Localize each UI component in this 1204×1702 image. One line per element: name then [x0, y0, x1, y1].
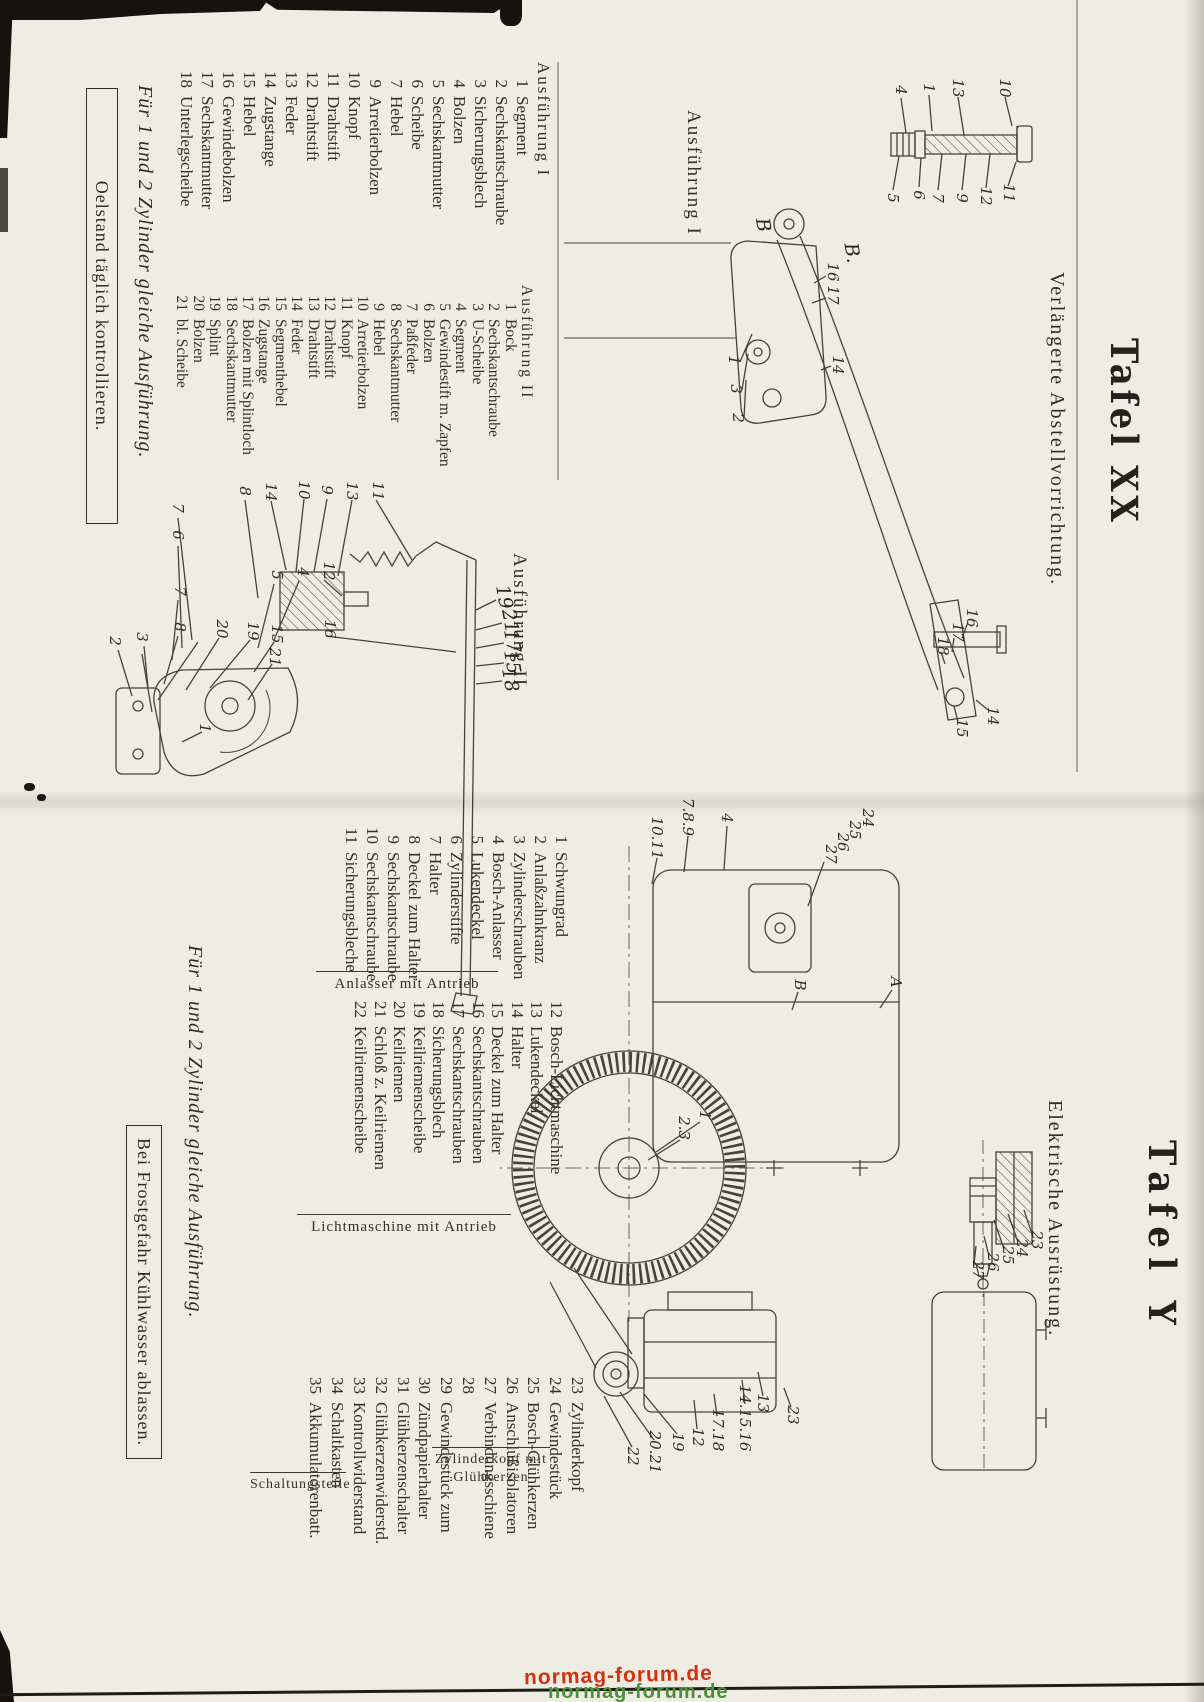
callout-label: 4 [294, 567, 312, 577]
drawing-battery [932, 1292, 1046, 1470]
part-number: 9 [370, 285, 386, 319]
part-label: Zylinderschrauben [509, 852, 530, 979]
parts-list-item: 14Halter [507, 992, 527, 1174]
parts-list-ausfuehrung-2: Ausführung II 1Bock2Sechskantschraube3U-… [173, 285, 534, 467]
part-label: Sicherungsblech [429, 1026, 449, 1138]
parts-list-item: 17Bolzen mit Splintloch [239, 285, 255, 467]
part-label: Hebel [239, 96, 260, 137]
callout-label: 10 [996, 78, 1014, 97]
page-fold-shadow [0, 790, 1204, 816]
part-label: Sechskantschraube [491, 96, 512, 225]
callout-label: 15 [953, 718, 971, 737]
callout-label: A [887, 977, 905, 988]
callout-label: 17 [824, 285, 842, 304]
callout-label: 27 [822, 844, 840, 863]
part-label: Scheibe [407, 96, 428, 150]
part-number: 11 [323, 62, 344, 96]
parts-list-item: 2Anlaßzahnkranz [530, 818, 551, 981]
part-label: Drahtstift [323, 96, 344, 161]
callout-label: 7 [171, 586, 189, 596]
callout-label: 4 [892, 85, 910, 95]
part-label: Arretierbolzen [365, 96, 386, 195]
callout-label: 1 [725, 355, 743, 365]
part-number: 1 [501, 285, 517, 319]
parts-list-item: 1Bock [501, 285, 517, 467]
parts-list-item: 31Glühkerzenschalter [392, 1368, 414, 1544]
part-number: 15 [272, 285, 288, 319]
callout-label: B. [839, 241, 864, 265]
part-number: 12 [321, 285, 337, 319]
part-label: Sechskantmutter [222, 319, 238, 422]
callout-label: 2 [106, 636, 124, 646]
callout-label: 12 [689, 1427, 707, 1446]
part-number: 5 [436, 285, 452, 319]
part-label: Lukendeckel [467, 852, 488, 940]
drawing-stop-lever [564, 209, 964, 690]
parts-list-item: 7Hebel [386, 62, 407, 225]
caption-line-2: Glühkerzen [432, 1469, 550, 1487]
part-label: Lukendeckel [527, 1026, 547, 1114]
part-number: 2 [491, 62, 512, 96]
staple-mark-2 [37, 794, 46, 801]
part-number: 1 [512, 62, 533, 96]
part-label: Gewindestift m. Zapfen [436, 319, 452, 467]
parts-list-item: 3U-Scheibe [468, 285, 484, 467]
part-label: bl. Scheibe [173, 319, 189, 388]
callout-label: B [791, 979, 809, 990]
part-number: 18 [429, 992, 449, 1026]
callout-label: 14 [984, 706, 1002, 725]
part-number: 16 [218, 62, 239, 96]
scan-edge-artifact-top-3 [500, 0, 522, 26]
callout-label: 19 [244, 621, 262, 640]
part-label: Segmenthebel [272, 319, 288, 407]
part-label: Akkumulatorenbatt. [305, 1402, 327, 1538]
part-label: Gewindebolzen [218, 96, 239, 203]
parts-list-item: 1Schwungrad [551, 818, 572, 981]
part-label: Knopf [344, 96, 365, 139]
callout-label: 27 [969, 1260, 987, 1279]
callout-label: 12 [320, 561, 338, 580]
part-number: 20 [189, 285, 205, 319]
part-label: Anlaßzahnkranz [530, 852, 551, 963]
callout-label: 6 [169, 530, 187, 540]
part-label: Kontrollwiderstand [348, 1402, 370, 1534]
part-label: Halter [507, 1026, 527, 1068]
parts-list-item: 9Hebel [370, 285, 386, 467]
part-number: 10 [344, 62, 365, 96]
part-label: Unterlegscheibe [176, 96, 197, 206]
parts-list-item: 35Akkumulatorenbatt. [305, 1368, 327, 1544]
part-number: 26 [501, 1368, 523, 1402]
parts-list-item: 16Gewindebolzen [218, 62, 239, 225]
part-number: 2 [530, 818, 551, 852]
part-label: Deckel zum Halter [488, 1026, 508, 1154]
parts-list-item: 17Sechskantmutter [197, 62, 218, 225]
callout-label: 22 [624, 1446, 642, 1465]
callout-label: 9 [953, 193, 971, 203]
callout-label: 13 [343, 481, 361, 500]
parts-list-item: 1Segment [512, 62, 533, 225]
part-number: 11 [341, 818, 362, 852]
part-number: 16 [255, 285, 271, 319]
part-label: Drahtstift [304, 319, 320, 378]
part-number: 23 [566, 1368, 588, 1402]
parts-list-item: 14Feder [288, 285, 304, 467]
parts-list-item: 4Segment [452, 285, 468, 467]
callout-label: 14 [829, 355, 847, 374]
scan-edge-artifact-left-2 [0, 168, 8, 232]
part-label: Sechskantschraube [485, 319, 501, 437]
callout-label: 6 [910, 190, 928, 200]
parts-list-item: 10Knopf [344, 62, 365, 225]
part-label: Keilriemenscheibe [409, 1026, 429, 1153]
callout-label: 14.15.16 [736, 1385, 754, 1452]
callout-label: 12 [977, 186, 995, 205]
note-same-design-left: Für 1 und 2 Zylinder gleiche Ausführung. [133, 85, 156, 459]
parts-list-item: 13Drahtstift [304, 285, 320, 467]
callout-label: 18 [934, 636, 952, 655]
part-label: Sechskantmutter [386, 319, 402, 422]
part-number: 5 [467, 818, 488, 852]
parts-list-item: 16Zugstange [255, 285, 271, 467]
parts-list-item: 18Sechskantmutter [222, 285, 238, 467]
part-label: Bosch-Anlasser [488, 852, 509, 960]
parts-list-header: Ausführung II [518, 285, 534, 467]
part-label: Feder [281, 96, 302, 135]
callout-label: 2 [729, 413, 747, 423]
part-number: 8 [386, 285, 402, 319]
callout-label: 1 [920, 83, 938, 93]
note-box-frost-warning: Bei Frostgefahr Kühlwasser ablassen. [126, 1125, 162, 1459]
figure-caption-dynamo: Lichtmaschine mit Antrieb [297, 1214, 511, 1244]
parts-list-item: 12Drahtstift [302, 62, 323, 225]
part-label: Arretierbolzen [354, 319, 370, 409]
callout-label: 8 [236, 486, 254, 496]
part-number: 7 [425, 818, 446, 852]
parts-list-starter: 1Schwungrad2Anlaßzahnkranz3Zylinderschra… [341, 818, 572, 981]
parts-list-item: 14Zugstange [260, 62, 281, 225]
parts-list-item: 32Glühkerzenwiderstd. [370, 1368, 392, 1544]
parts-list-item: 16Sechskantschrauben [468, 992, 488, 1174]
parts-list-item: 5Lukendeckel [467, 818, 488, 981]
callout-label: 20.21 [646, 1431, 664, 1474]
callout-label: 1 [196, 723, 214, 733]
parts-list-item: 23Zylinderkopf [566, 1368, 588, 1544]
note-box-oil-check: Oelstand täglich kontrollieren. [86, 88, 118, 524]
parts-list-dynamo: 12Bosch-Lichtmaschine13Lukendeckel14Halt… [350, 992, 566, 1174]
parts-list-item: 11Knopf [337, 285, 353, 467]
part-number: 30 [414, 1368, 436, 1402]
part-label: Bolzen mit Splintloch [239, 319, 255, 455]
part-number: 24 [544, 1368, 566, 1402]
part-label: Zylinderkopf [566, 1402, 588, 1492]
part-label: Bolzen [189, 319, 205, 363]
callout-label: 19 [669, 1432, 687, 1451]
part-label: Zylinderstifte [446, 852, 467, 945]
part-label: Hebel [386, 96, 407, 137]
callout-label: 16 [321, 619, 339, 638]
callout-label: 13 [754, 1393, 772, 1412]
parts-list-item: 34Schaltkasten [326, 1368, 348, 1544]
callout-label: 14 [262, 482, 280, 501]
parts-list-item: 18Sicherungsblech [429, 992, 449, 1174]
part-number: 17 [239, 285, 255, 319]
part-number: 29 [435, 1368, 457, 1402]
callout-label: 21 [266, 647, 284, 666]
part-label: Bosch-Lichtmaschine [546, 1026, 566, 1174]
callout-label: 9 [318, 485, 336, 495]
parts-list-item: 9Sechskantschraube [383, 818, 404, 981]
part-number: 13 [281, 62, 302, 96]
scanned-manual-page: Tafel XX Verlängerte Abstellvorrichtung.… [0, 0, 1204, 1702]
part-label: Bolzen [449, 96, 470, 144]
part-number: 15 [239, 62, 260, 96]
parts-list-header: Ausführung I [533, 62, 554, 225]
part-number: 11 [337, 285, 353, 319]
part-number: 1 [551, 818, 572, 852]
part-number: 20 [390, 992, 410, 1026]
callout-label: 19 [491, 583, 517, 611]
parts-list-item: 21bl. Scheibe [173, 285, 189, 467]
parts-list-item: 7Paßfeder [403, 285, 419, 467]
part-number: 15 [488, 992, 508, 1026]
parts-list-item: 15Hebel [239, 62, 260, 225]
figure-label-ausfuehrung-1: Ausführung I [682, 110, 704, 236]
figure-caption-zylinderkopf: Zylinderkopf mit Glühkerzen [432, 1447, 550, 1493]
parts-list-item: 5Sechskantmutter [428, 62, 449, 225]
part-label: Sechskantschraube [383, 852, 404, 981]
part-number: 14 [288, 285, 304, 319]
parts-list-item: 7Halter [425, 818, 446, 981]
parts-list-ausfuehrung-1: Ausführung I 1Segment2Sechskantschraube3… [176, 62, 554, 225]
parts-list-item: 33Kontrollwiderstand [348, 1368, 370, 1544]
part-number: 21 [173, 285, 189, 319]
part-number: 34 [326, 1368, 348, 1402]
part-label: Glühkerzenschalter [392, 1402, 414, 1534]
callout-label: 18 [497, 666, 523, 694]
part-number: 18 [176, 62, 197, 96]
part-label: Zugstange [255, 319, 271, 384]
paper-crease-line [1076, 0, 1078, 772]
callout-label: 3 [133, 632, 151, 642]
parts-list-item: 10Sechskantschraube [362, 818, 383, 981]
callout-label: 7 [929, 193, 947, 203]
part-label: Bock [501, 319, 517, 352]
parts-list-item: 21Schloß z. Keilriemen [370, 992, 390, 1174]
parts-list-item: 12Drahtstift [321, 285, 337, 467]
part-number: 3 [470, 62, 491, 96]
part-number: 12 [302, 62, 323, 96]
parts-list-item: 2Sechskantschraube [485, 285, 501, 467]
part-number: 13 [527, 992, 547, 1026]
part-number: 19 [409, 992, 429, 1026]
parts-list-item: 13Feder [281, 62, 302, 225]
part-number: 14 [260, 62, 281, 96]
parts-list-item: 4Bosch-Anlasser [488, 818, 509, 981]
parts-list-item: 6Scheibe [407, 62, 428, 225]
parts-list-rows: 1Bock2Sechskantschraube3U-Scheibe4Segmen… [173, 285, 518, 467]
part-number: 32 [370, 1368, 392, 1402]
drawing-bolt-detail [891, 95, 1032, 190]
part-number: 4 [452, 285, 468, 319]
part-number: 7 [386, 62, 407, 96]
parts-list-item: 10Arretierbolzen [354, 285, 370, 467]
staple-mark-1 [24, 783, 35, 791]
page-subtitle-tafel-y: Elektrische Ausrüstung. [1043, 1100, 1066, 1337]
parts-list-rows: 12Bosch-Lichtmaschine13Lukendeckel14Halt… [350, 992, 566, 1174]
callout-label: 11 [1000, 183, 1018, 202]
parts-list-item: 12Bosch-Lichtmaschine [546, 992, 566, 1174]
parts-list-item: 6Zylinderstifte [446, 818, 467, 981]
watermark-red: normag-forum.de [524, 1662, 713, 1691]
part-label: Hebel [370, 319, 386, 356]
caption-line-1: Zylinderkopf mit [432, 1451, 550, 1469]
part-label: Keilriemen [390, 1026, 410, 1102]
callout-label: 7 [169, 503, 187, 513]
part-label: Paßfeder [403, 319, 419, 374]
part-number: 6 [407, 62, 428, 96]
part-number: 6 [446, 818, 467, 852]
parts-list-item: 3Sicherungsblech [470, 62, 491, 225]
part-number: 22 [350, 992, 370, 1026]
parts-list-item: 19Splint [206, 285, 222, 467]
part-label: Deckel zum Halter [404, 852, 425, 980]
part-number: 21 [370, 992, 390, 1026]
part-number: 35 [305, 1368, 327, 1402]
parts-list-item: 15Segmenthebel [272, 285, 288, 467]
part-label: Segment [452, 319, 468, 373]
callout-label: 13 [949, 78, 967, 97]
part-label: Keilriemenscheibe [350, 1026, 370, 1153]
note-same-design-right: Für 1 und 2 Zylinder gleiche Ausführung. [183, 945, 206, 1319]
part-number: 28 [457, 1368, 479, 1402]
parts-list-item: 20Bolzen [189, 285, 205, 467]
part-number: 7 [403, 285, 419, 319]
part-number: 5 [428, 62, 449, 96]
part-number: 9 [383, 818, 404, 852]
part-number: 27 [479, 1368, 501, 1402]
callout-label: 10 [295, 480, 313, 499]
part-label: Sechskantschrauben [448, 1026, 468, 1164]
parts-list-item: 9Arretierbolzen [365, 62, 386, 225]
part-label: Sechskantschraube [362, 852, 383, 981]
parts-list-rows: 1Segment2Sechskantschraube3Sicherungsble… [176, 62, 533, 225]
part-number: 4 [488, 818, 509, 852]
callout-label: 17.18 [709, 1409, 727, 1452]
part-label: U-Scheibe [468, 319, 484, 384]
parts-list-item: 3Zylinderschrauben [509, 818, 530, 981]
parts-list-item: 18Unterlegscheibe [176, 62, 197, 225]
figure-caption-schaltungsteile: Schaltungsteile [250, 1472, 346, 1496]
document-rotated-content: Tafel XX Verlängerte Abstellvorrichtung.… [0, 0, 1204, 1702]
page-edge-shading [1184, 0, 1204, 1702]
part-label: Knopf [337, 319, 353, 359]
callout-label: 8 [171, 622, 189, 632]
part-label: Drahtstift [321, 319, 337, 378]
part-number: 10 [354, 285, 370, 319]
part-number: 25 [523, 1368, 545, 1402]
parts-list-item: 19Keilriemenscheibe [409, 992, 429, 1174]
parts-list-item: 17Sechskantschrauben [448, 992, 468, 1174]
parts-list-item: 13Lukendeckel [527, 992, 547, 1174]
part-label: Sechskantschrauben [468, 1026, 488, 1164]
part-number: 3 [468, 285, 484, 319]
parts-list-item: 11Drahtstift [323, 62, 344, 225]
parts-list-item: 4Bolzen [449, 62, 470, 225]
part-number: 17 [448, 992, 468, 1026]
part-label: Sechskantmutter [197, 96, 218, 209]
part-number: 3 [509, 818, 530, 852]
parts-list-item: 22Keilriemenscheibe [350, 992, 370, 1174]
parts-list-item: 20Keilriemen [390, 992, 410, 1174]
part-number: 17 [197, 62, 218, 96]
callout-label: 2.3 [675, 1116, 693, 1140]
part-label: Zugstange [260, 96, 281, 167]
callout-label: 5 [268, 570, 286, 580]
part-label: Segment [512, 96, 533, 156]
callout-label: 10.11 [648, 817, 666, 860]
callout-label: 3 [727, 384, 745, 394]
parts-list-item: 5Gewindestift m. Zapfen [436, 285, 452, 467]
callout-label: 23 [784, 1405, 802, 1424]
part-label: Sicherungsbleche [341, 852, 362, 972]
drawing-strokes [116, 62, 1046, 1470]
technical-drawings [0, 0, 1204, 1702]
part-number: 19 [206, 285, 222, 319]
callout-label: 15 [268, 624, 286, 643]
part-number: 33 [348, 1368, 370, 1402]
parts-list-item: 2Sechskantschraube [491, 62, 512, 225]
part-label: Glühkerzenwiderstd. [370, 1402, 392, 1544]
parts-list-item: 6Bolzen [419, 285, 435, 467]
parts-list-item: 11Sicherungsbleche [341, 818, 362, 981]
part-number: 31 [392, 1368, 414, 1402]
part-number: 16 [468, 992, 488, 1026]
part-label: Bolzen [419, 319, 435, 363]
part-label: Feder [288, 319, 304, 354]
part-label: Halter [425, 852, 446, 894]
parts-list-item: 8Deckel zum Halter [404, 818, 425, 981]
page-title-tafel-xx: Tafel XX [1102, 338, 1146, 525]
part-number: 6 [419, 285, 435, 319]
part-number: 2 [485, 285, 501, 319]
callout-label: 20 [213, 619, 231, 638]
part-label: Schwungrad [551, 852, 572, 937]
callout-label: 5 [884, 193, 902, 203]
parts-list-item: 15Deckel zum Halter [488, 992, 508, 1174]
page-subtitle-tafel-xx: Verlängerte Abstellvorrichtung. [1045, 272, 1068, 586]
part-label: Splint [206, 319, 222, 356]
part-number: 9 [365, 62, 386, 96]
part-number: 10 [362, 818, 383, 852]
part-number: 13 [304, 285, 320, 319]
part-number: 8 [404, 818, 425, 852]
part-number: 18 [222, 285, 238, 319]
callout-label: 16 [824, 262, 842, 281]
parts-list-item: 8Sechskantmutter [386, 285, 402, 467]
part-number: 4 [449, 62, 470, 96]
part-label: Sicherungsblech [470, 96, 491, 208]
part-number: 14 [507, 992, 527, 1026]
part-number: 12 [546, 992, 566, 1026]
page-title-tafel-y: Tafel Y [1140, 1140, 1184, 1334]
parts-list-rows: 1Schwungrad2Anlaßzahnkranz3Zylinderschra… [341, 818, 572, 981]
part-label: Schloß z. Keilriemen [370, 1026, 390, 1170]
callout-label: 1 [696, 1110, 714, 1120]
part-label: Sechskantmutter [428, 96, 449, 209]
callout-label: 11 [369, 481, 387, 500]
